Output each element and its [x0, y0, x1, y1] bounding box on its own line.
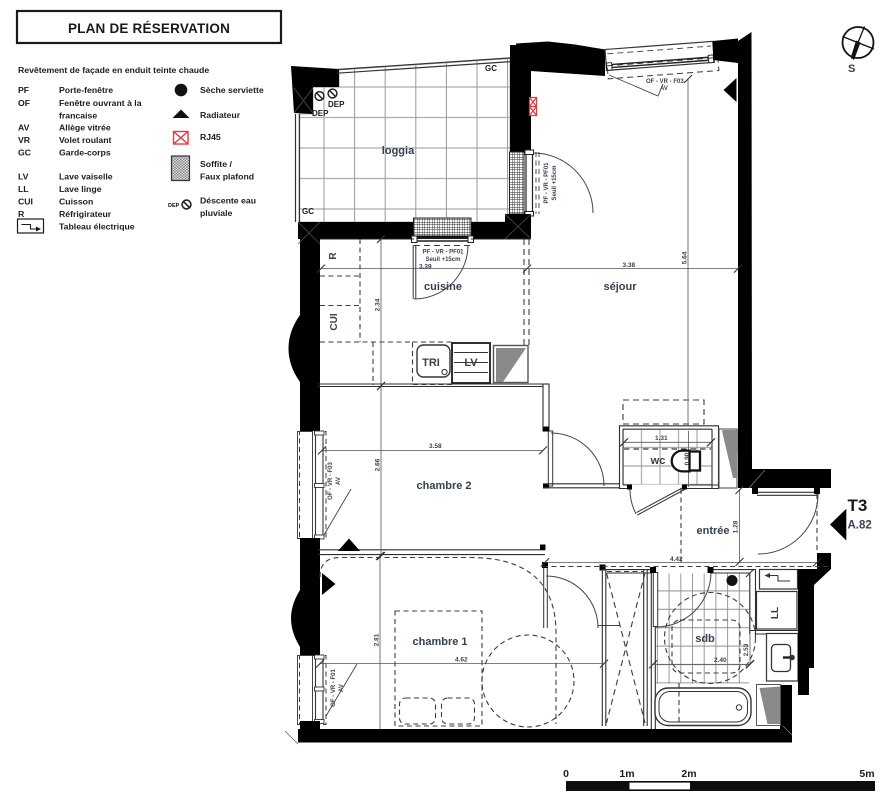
- svg-text:cuisine: cuisine: [424, 281, 462, 293]
- svg-text:5m: 5m: [859, 768, 874, 780]
- svg-text:Déscente eau: Déscente eau: [200, 196, 256, 206]
- svg-text:R: R: [18, 209, 25, 219]
- svg-text:DEP: DEP: [168, 203, 180, 209]
- svg-text:GC: GC: [18, 148, 32, 158]
- svg-text:Seuil +15cm: Seuil +15cm: [552, 166, 558, 201]
- svg-text:A.82: A.82: [848, 520, 872, 532]
- svg-text:Seuil +15cm: Seuil +15cm: [426, 257, 461, 263]
- svg-text:chambre 1: chambre 1: [412, 636, 467, 648]
- svg-text:2.66: 2.66: [375, 458, 382, 471]
- svg-text:LV: LV: [464, 357, 478, 369]
- svg-text:Volet roulant: Volet roulant: [59, 135, 112, 145]
- svg-text:chambre 2: chambre 2: [416, 480, 471, 492]
- svg-text:OF: OF: [18, 98, 30, 108]
- svg-text:PF: PF: [18, 85, 29, 95]
- svg-text:3.39: 3.39: [419, 263, 432, 270]
- svg-text:CUI: CUI: [18, 197, 33, 207]
- svg-text:2.81: 2.81: [374, 633, 381, 646]
- svg-text:DEP: DEP: [312, 109, 329, 118]
- svg-text:DEP: DEP: [328, 100, 345, 109]
- svg-text:Fenêtre ouvrant à la: Fenêtre ouvrant à la: [59, 98, 142, 108]
- svg-text:AV: AV: [336, 477, 342, 485]
- svg-text:GC: GC: [485, 64, 497, 73]
- svg-text:Lave linge: Lave linge: [59, 184, 102, 194]
- svg-text:1m: 1m: [619, 768, 634, 780]
- svg-text:Soffite /: Soffite /: [200, 159, 232, 169]
- svg-text:séjour: séjour: [603, 281, 637, 293]
- svg-text:Faux plafond: Faux plafond: [200, 172, 254, 182]
- svg-text:2m: 2m: [681, 768, 696, 780]
- svg-text:1.31: 1.31: [655, 435, 668, 442]
- svg-text:francaise: francaise: [59, 111, 97, 121]
- svg-text:OF - VR - F01: OF - VR - F01: [331, 669, 337, 707]
- svg-text:3.38: 3.38: [623, 262, 636, 269]
- svg-text:CUI: CUI: [329, 313, 340, 330]
- svg-text:Allège vitrée: Allège vitrée: [59, 123, 111, 133]
- svg-text:1.28: 1.28: [733, 520, 740, 533]
- svg-text:S: S: [848, 63, 855, 75]
- svg-text:Tableau électrique: Tableau électrique: [59, 222, 135, 232]
- svg-text:GC: GC: [302, 207, 314, 216]
- svg-text:T3: T3: [848, 496, 868, 515]
- svg-text:sdb: sdb: [695, 633, 715, 645]
- svg-text:OF - VR - F03: OF - VR - F03: [646, 79, 684, 85]
- svg-text:Réfrigirateur: Réfrigirateur: [59, 209, 112, 219]
- svg-text:VR: VR: [18, 135, 31, 145]
- svg-text:2.40: 2.40: [714, 657, 727, 664]
- svg-text:loggia: loggia: [382, 145, 415, 157]
- svg-text:3.58: 3.58: [429, 443, 442, 450]
- svg-text:PLAN DE RÉSERVATION: PLAN DE RÉSERVATION: [68, 21, 230, 36]
- svg-text:RJ45: RJ45: [200, 132, 221, 142]
- svg-text:R: R: [328, 252, 339, 260]
- svg-text:pluviale: pluviale: [200, 208, 233, 218]
- svg-text:LL: LL: [770, 607, 781, 619]
- svg-text:Radiateur: Radiateur: [200, 110, 241, 120]
- svg-text:AV: AV: [18, 123, 30, 133]
- svg-text:Revêtement de façade en enduit: Revêtement de façade en enduit teinte ch…: [18, 65, 209, 75]
- svg-text:2.34: 2.34: [375, 298, 382, 311]
- svg-text:LL: LL: [18, 184, 29, 194]
- svg-text:TRI: TRI: [422, 357, 440, 369]
- svg-text:4.62: 4.62: [455, 657, 468, 664]
- svg-text:PF - VR - PF01: PF - VR - PF01: [422, 250, 464, 256]
- svg-text:wc: wc: [650, 455, 666, 467]
- svg-text:LV: LV: [18, 172, 29, 182]
- svg-text:0.90: 0.90: [684, 452, 691, 465]
- svg-text:PF - VR - PF01: PF - VR - PF01: [544, 162, 550, 204]
- svg-text:2.53: 2.53: [743, 643, 750, 656]
- svg-text:Sèche serviette: Sèche serviette: [200, 85, 264, 95]
- svg-text:Lave vaiselle: Lave vaiselle: [59, 172, 113, 182]
- svg-text:entrée: entrée: [696, 525, 729, 537]
- svg-text:5.64: 5.64: [682, 251, 689, 264]
- svg-text:Cuisson: Cuisson: [59, 197, 93, 207]
- svg-text:Porte-fenêtre: Porte-fenêtre: [59, 85, 113, 95]
- svg-text:OF - VR - F03: OF - VR - F03: [328, 462, 334, 500]
- svg-text:Garde-corps: Garde-corps: [59, 148, 111, 158]
- svg-text:0: 0: [563, 768, 569, 780]
- svg-text:4.42: 4.42: [670, 556, 683, 563]
